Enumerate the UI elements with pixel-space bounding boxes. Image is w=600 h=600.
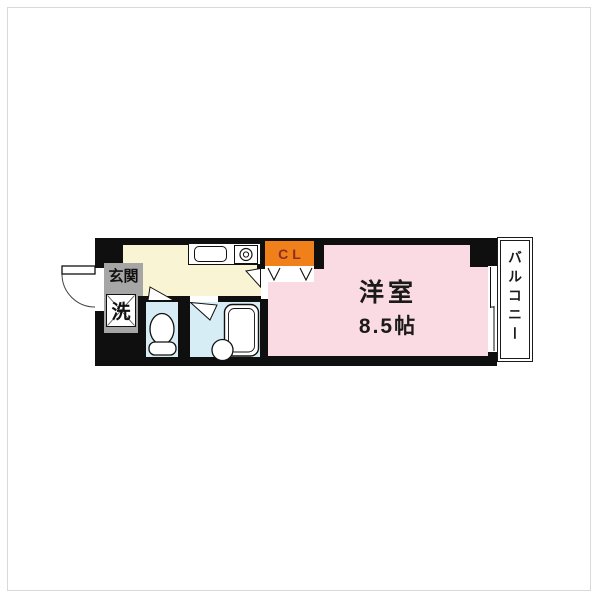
entrance-label: 玄関 (103, 265, 144, 286)
kitchen-sink-icon (194, 246, 227, 262)
closet-wall-right (314, 238, 324, 269)
main-room-name: 洋室 (288, 273, 488, 309)
closet-label: CL (274, 246, 305, 262)
bathroom (190, 302, 260, 357)
balcony: バルコニー (497, 237, 533, 362)
sliding-window-icon (488, 266, 497, 352)
floor-plan: CL バルコニー 洗 (0, 0, 600, 600)
balcony-label: バルコニー (505, 250, 525, 358)
wall-notch (470, 238, 497, 267)
bathroom-door-opening (190, 296, 218, 302)
washing-machine-icon: 洗 (106, 294, 136, 327)
balcony-inner-rail: バルコニー (500, 240, 530, 359)
gas-stove-icon (234, 245, 258, 264)
laundry-label: 洗 (111, 297, 130, 324)
main-room-label: 洋室 8.5帖 (288, 273, 488, 340)
main-room-size: 8.5帖 (288, 310, 488, 340)
closet: CL (265, 241, 314, 266)
toilet-room (146, 302, 178, 357)
